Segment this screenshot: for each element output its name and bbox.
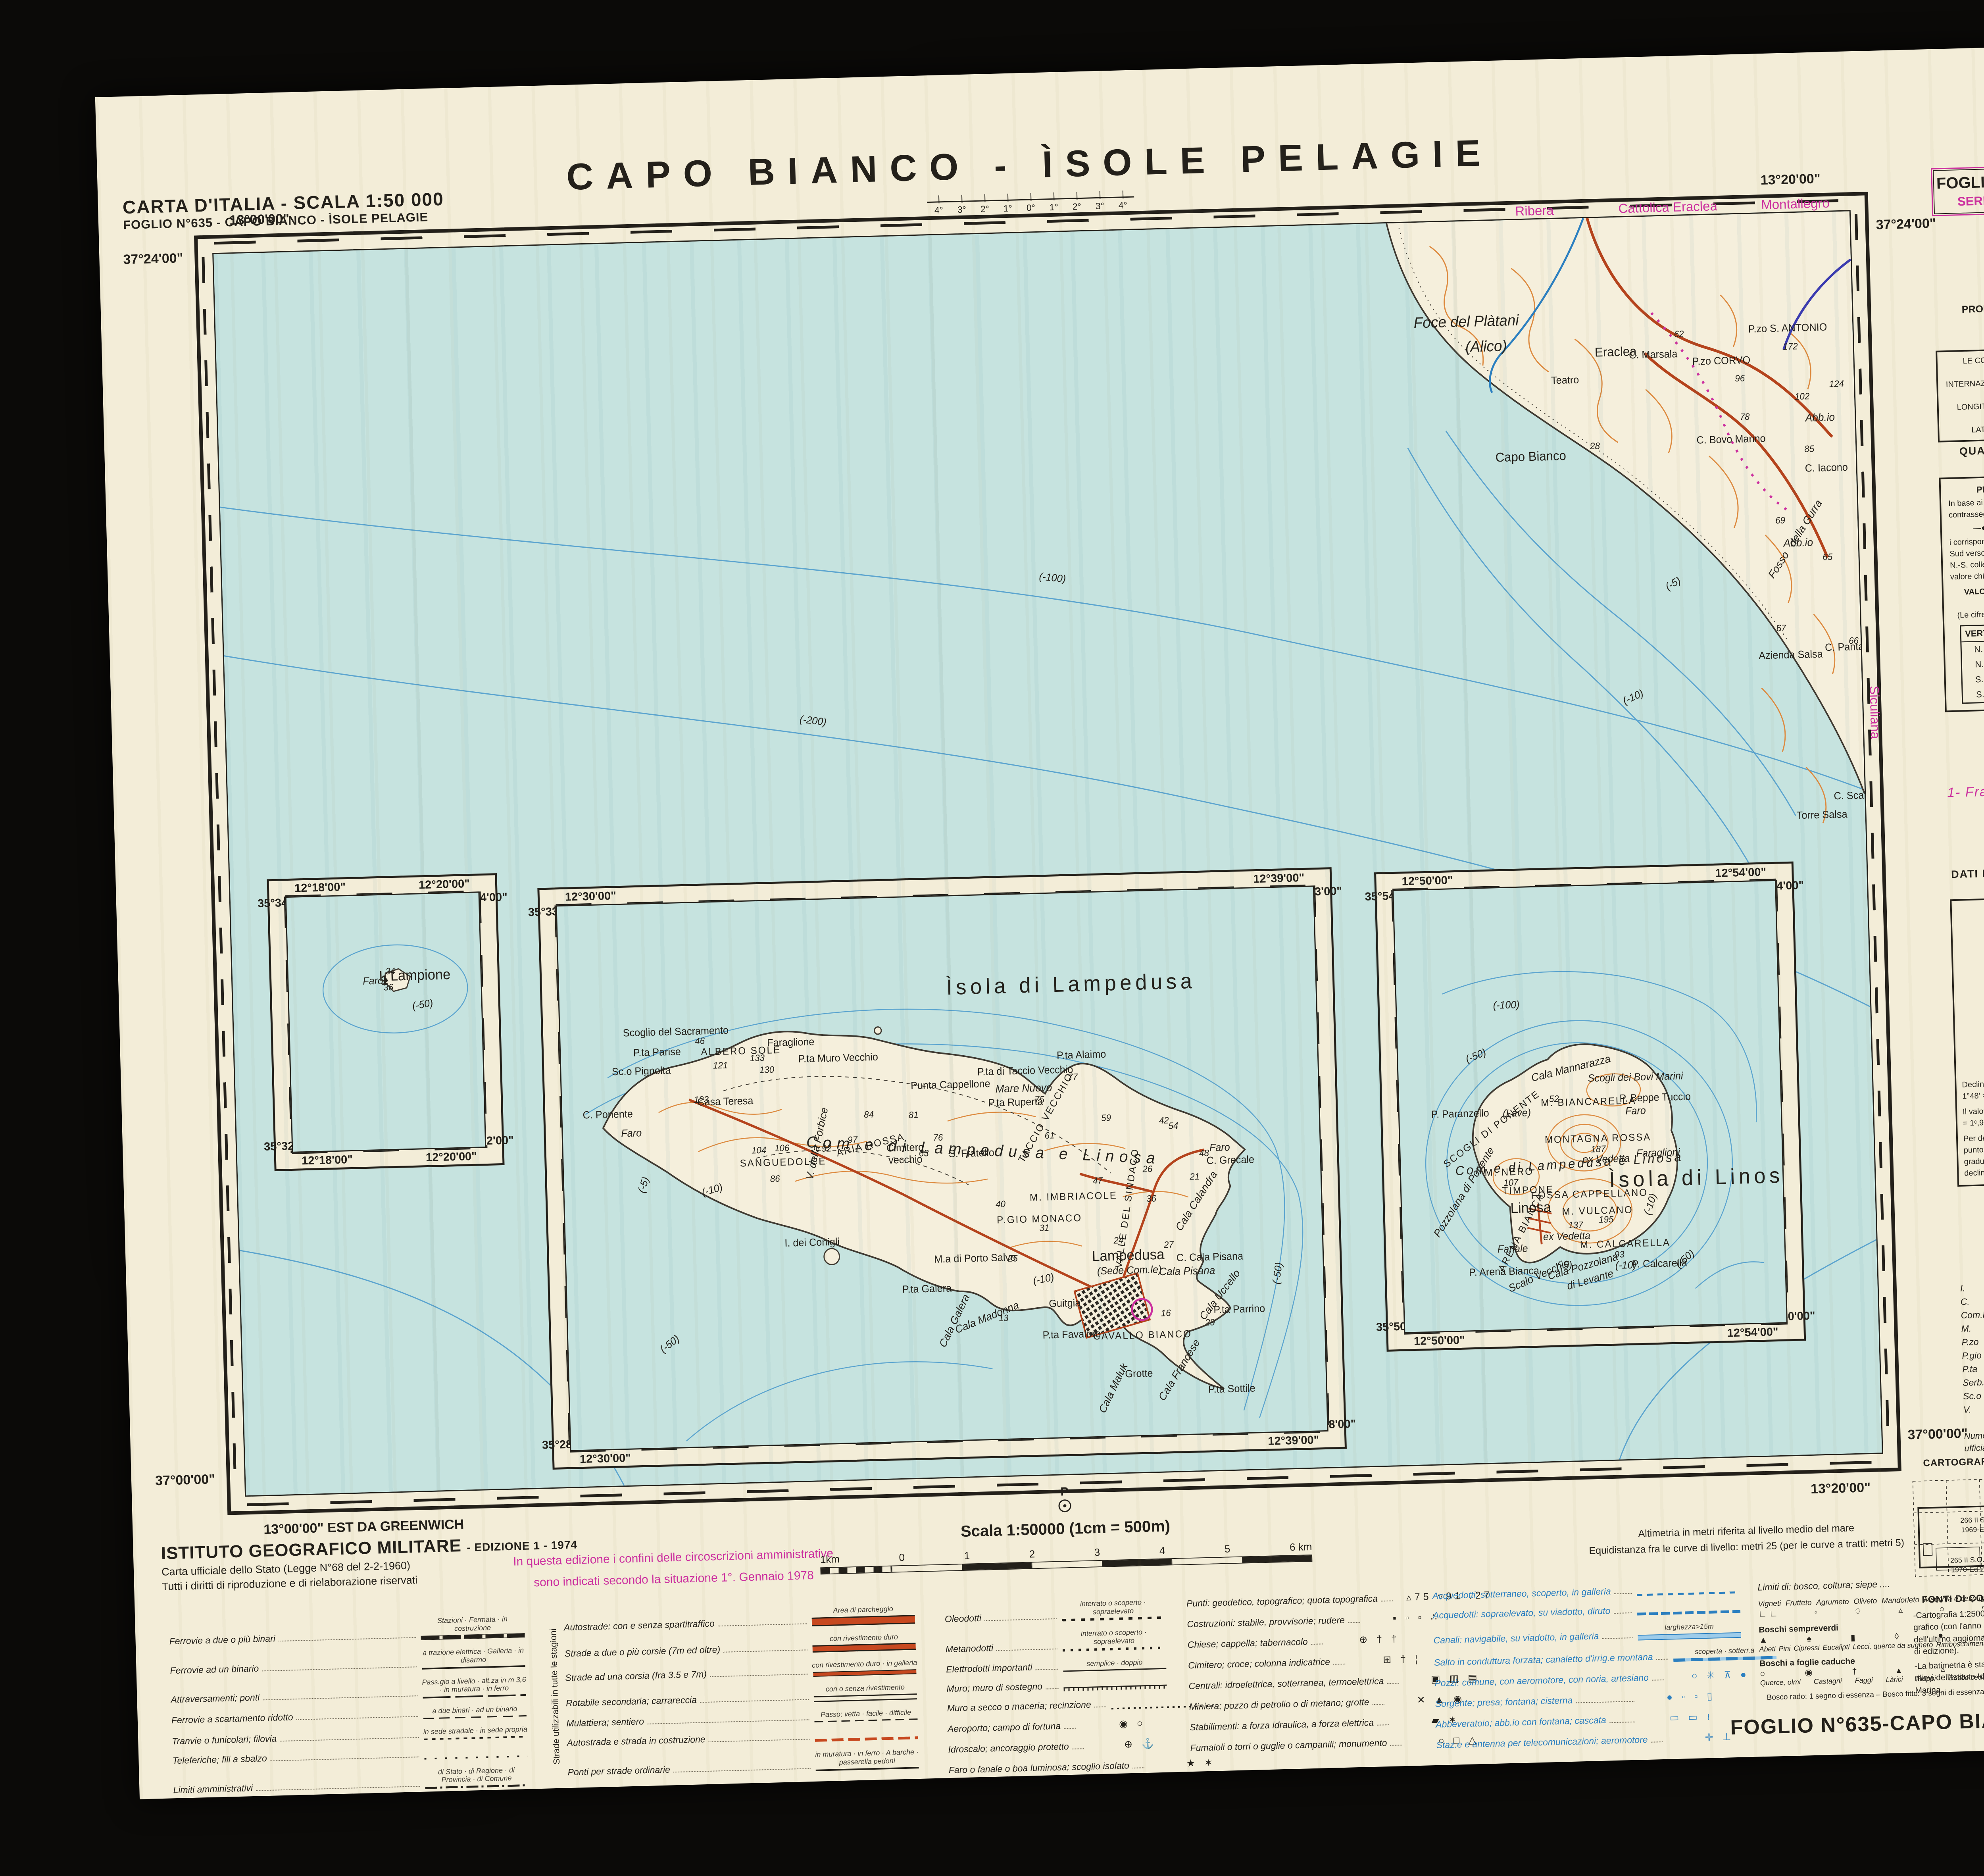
veg-limits: Limiti di: bosco, coltura; siepe .... bbox=[1757, 1576, 1984, 1593]
legend-part bbox=[700, 1699, 809, 1703]
edge-town-montallegro: Montallegro bbox=[1761, 196, 1830, 213]
map-label: 265 II S.O. bbox=[1950, 1556, 1984, 1564]
scale-segment bbox=[1102, 1559, 1172, 1566]
label: Làrici bbox=[1886, 1675, 1903, 1684]
map-label: (-5) bbox=[636, 1176, 651, 1195]
legend-symbol-sample bbox=[814, 1693, 917, 1702]
map-label: 28 bbox=[1590, 441, 1600, 451]
vertex-cell: S. O. bbox=[1962, 671, 1984, 687]
legend-part bbox=[1377, 1724, 1389, 1726]
map-label: 31 bbox=[1039, 1222, 1049, 1233]
legend-part: Miniera; pozzo di petrolio o di metano; … bbox=[1189, 1697, 1369, 1712]
legend-col-railways: Ferrovie a due o più binariStazioni · Fe… bbox=[169, 1614, 531, 1804]
inset-coord: 12°20'00" bbox=[426, 1150, 477, 1164]
orientation-title: DATI DI ORIENTAMENTO PER IL CENTRO DELLA… bbox=[1949, 862, 1984, 893]
map-label: Azienda Salsa bbox=[1759, 648, 1823, 662]
map-label: (-5) bbox=[1557, 1259, 1573, 1271]
legend-sublabel: in muratura · in ferro · A barche · pass… bbox=[813, 1748, 921, 1767]
legend-part bbox=[256, 1786, 420, 1791]
map-label: C. Ponente bbox=[583, 1108, 633, 1121]
declination-diagram: 2°05'2°00'1°55'1°50'1°45'1°45' bbox=[1961, 900, 1984, 1026]
legend-part bbox=[718, 1623, 807, 1626]
label: Frutteto bbox=[1786, 1599, 1812, 1608]
legend-part bbox=[984, 1618, 1057, 1621]
label: Faggi bbox=[1855, 1676, 1873, 1685]
map-label: 1 bbox=[381, 973, 388, 988]
vertex-th: VERTICE bbox=[1961, 625, 1984, 641]
map-label: Scoglio del Sacramento bbox=[623, 1025, 729, 1039]
vertex-cell: N. E. bbox=[1962, 656, 1984, 672]
map-label: P.ta Parise bbox=[633, 1046, 681, 1059]
legend-part bbox=[263, 1695, 417, 1700]
legend-symbol-sample bbox=[424, 1736, 527, 1740]
legend-part bbox=[723, 1650, 807, 1653]
legend-sublabel: Area di parcheggio bbox=[809, 1604, 917, 1615]
legend-row: Teleferiche; fili a sbalzo bbox=[172, 1746, 529, 1766]
legend-part: Teleferiche; fili a sbalzo bbox=[172, 1753, 267, 1766]
legend-part: Sorgente; presa; fontana; cisterna bbox=[1435, 1695, 1573, 1709]
legend-symbol-sample bbox=[425, 1784, 528, 1789]
legend-part bbox=[1064, 1728, 1076, 1729]
label: Vigneti bbox=[1758, 1599, 1781, 1609]
legend-sublabel: di Stato · di Regione · di Provincia · d… bbox=[423, 1765, 530, 1784]
map-label: Faro bbox=[1209, 1142, 1230, 1154]
map-label: Scogli dei Bovi Marini bbox=[1588, 1070, 1684, 1084]
legend-row: Aeroporto; campo di fortuna◉ ○ bbox=[948, 1717, 1170, 1735]
scale-segment bbox=[1242, 1555, 1312, 1563]
legend-col-lines: Oleodottiinterrato o scoperto · sopraele… bbox=[944, 1598, 1171, 1785]
map-label: Lampedusa bbox=[1092, 1246, 1165, 1264]
legend-symbol-sample bbox=[813, 1643, 916, 1653]
label: ▲ bbox=[1759, 1635, 1768, 1645]
map-label: Abb.io bbox=[1782, 536, 1813, 549]
map-label: Punta Cappellone bbox=[911, 1078, 990, 1092]
legend-sublabel: interrato o scoperto · sopraelevato bbox=[1060, 1628, 1168, 1647]
label: 1 bbox=[964, 1550, 970, 1562]
map-label: Grotte bbox=[1125, 1368, 1153, 1380]
abbreviations-title: ABBREVIAZIONI bbox=[1959, 1259, 1984, 1278]
legend-row: Abbeveratoio; abb.io con fontana; cascat… bbox=[1436, 1710, 1746, 1730]
map-label: 52 bbox=[1549, 1093, 1559, 1104]
label: ▮ bbox=[1850, 1632, 1855, 1643]
map-label: 172 bbox=[1783, 341, 1798, 352]
legend-row: Faro o fanale o boa luminosa; scoglio is… bbox=[948, 1758, 1171, 1776]
map-label: 77 bbox=[1068, 1072, 1079, 1082]
legend-symbol-sample bbox=[423, 1694, 526, 1699]
label: 3° bbox=[1088, 200, 1111, 212]
label: ◉ bbox=[1805, 1667, 1813, 1678]
map-label: 63 bbox=[919, 1148, 929, 1158]
legend-part bbox=[1046, 1688, 1058, 1689]
map-label: Abb.io bbox=[1804, 411, 1835, 424]
label: 3° bbox=[950, 204, 974, 215]
legend-part bbox=[1061, 1682, 1169, 1691]
map-label: 76 bbox=[933, 1132, 943, 1143]
legend-part: Mulattiera; sentiero bbox=[566, 1716, 644, 1729]
label: Agrumeto bbox=[1816, 1598, 1849, 1607]
legend-symbol-sample bbox=[421, 1633, 525, 1640]
scale-segment bbox=[1171, 1557, 1242, 1565]
legend-part: Strade ad una corsia (fra 3.5 e 7m) bbox=[565, 1669, 707, 1683]
inset-coord: 12°39'00" bbox=[1253, 872, 1305, 886]
legend-row: Fumaioli o torri o guglie o campanili; m… bbox=[1190, 1736, 1413, 1754]
map-label: 36 bbox=[1146, 1193, 1157, 1204]
map-label: 96 bbox=[1735, 373, 1745, 383]
vertex-table: VERTICE FUSO OVEST FUSO EST N. O.2342905… bbox=[1960, 620, 1984, 704]
legend-part bbox=[1381, 1601, 1393, 1602]
legend-part: ✛ ⊥ bbox=[1666, 1730, 1773, 1745]
legend-sublabel: Stazioni · Fermata · in costruzione bbox=[419, 1614, 526, 1634]
map-area: Foce del Plàtani(Alico)Capo BiancoEracle… bbox=[212, 210, 1883, 1497]
legend-part: a due binari · ad un binario bbox=[421, 1705, 529, 1719]
legend-row: Ferrovie a scartamento ridottoa due bina… bbox=[171, 1705, 528, 1726]
legend-part bbox=[1094, 1707, 1106, 1708]
label: ◦ bbox=[1814, 1607, 1817, 1618]
map-label: P.ta Sottile bbox=[1208, 1383, 1255, 1395]
legend-part: interrato o scoperto · sopraelevato bbox=[1059, 1598, 1167, 1622]
label: Castagni bbox=[1813, 1677, 1842, 1686]
legend-row: Elettrodotti importantisemplice · doppio bbox=[946, 1657, 1169, 1675]
legend-part: ⊕ ⚓ bbox=[1087, 1737, 1194, 1751]
legend-col-vegetation: Limiti di: bosco, coltura; siepe .... Vi… bbox=[1757, 1576, 1984, 1702]
map-label: ex Vedetta bbox=[1582, 1153, 1630, 1166]
legend-part: Stabilimenti: a forza idraulica, a forza… bbox=[1190, 1717, 1374, 1733]
legend-row: Limiti amministratividi Stato · di Regio… bbox=[173, 1765, 530, 1795]
legend-part: Aeroporto; campo di fortuna bbox=[948, 1721, 1061, 1734]
map-label: P. Paranzello bbox=[1431, 1108, 1489, 1120]
map-label: vecchio bbox=[888, 1154, 923, 1166]
map-label: 81 bbox=[908, 1109, 918, 1120]
legend-row: Centrali: idroelettrica, sotterranea, te… bbox=[1188, 1674, 1411, 1692]
map-label: 137 bbox=[1568, 1220, 1584, 1231]
legend-part bbox=[1387, 1683, 1399, 1684]
legend-part bbox=[1614, 1612, 1632, 1614]
map-label: 59 bbox=[1101, 1112, 1111, 1123]
legend-part: Attraversamenti; ponti bbox=[171, 1692, 260, 1705]
inset-coord: 12°30'00" bbox=[565, 889, 617, 904]
grid-head: PER TRACCIARE LA QUADRETTATURA: bbox=[1948, 479, 1984, 496]
label: △ bbox=[1982, 1629, 1984, 1639]
legend-row: Acquedotti: sopraelevato, su viadotto, d… bbox=[1433, 1602, 1742, 1621]
ellipsoid-box: LE COORDINATE GEOGRAFICHE SONO RIFERITE … bbox=[1936, 344, 1984, 443]
scale-title: Scala 1:50000 (1cm = 500m) bbox=[960, 1517, 1170, 1541]
legend-part: Chiese; cappella; tabernacolo bbox=[1187, 1636, 1308, 1650]
label: ◊ bbox=[1894, 1631, 1899, 1641]
legend-col-water: Acquedotti: sotterraneo, scoperto, in ga… bbox=[1432, 1583, 1746, 1760]
label: ○ bbox=[1939, 1604, 1945, 1614]
vertex-rows: N. O.23429054140994N. E.23724144140421S.… bbox=[1961, 637, 1984, 703]
legend-symbol-icon: ◉ ○ bbox=[1079, 1716, 1186, 1731]
legend-sublabel: Passo; vetta · facile · difficile bbox=[812, 1708, 919, 1719]
grid-panel-title: QUADRETTATURA CHILOMETRICA GAUSS - BOAGA bbox=[1938, 440, 1984, 471]
legend-symbol-sample bbox=[1063, 1646, 1166, 1651]
legend-row: Canali: navigabile, su viadotto, in gall… bbox=[1433, 1622, 1743, 1646]
legend-part: Staz.e e antenna per telecomunicazioni; … bbox=[1436, 1734, 1648, 1751]
legend-part: Autostrada e strada in costruzione bbox=[567, 1734, 706, 1749]
scale-segment bbox=[962, 1562, 1032, 1570]
map-label: (-50) bbox=[1271, 1262, 1284, 1285]
legend-sublabel: semplice · doppio bbox=[1061, 1657, 1168, 1668]
legend-part: Tranvie o funicolari; filovia bbox=[172, 1733, 277, 1747]
label: 0 bbox=[899, 1551, 905, 1564]
grid-p3: VALORI IN METRI DELLE COORDINATE DEI VER… bbox=[1951, 581, 1984, 610]
label: ▵ bbox=[1898, 1605, 1903, 1615]
map-label: S. Fratello bbox=[949, 1147, 995, 1160]
map-sheet: CARTA D'ITALIA - SCALA 1:50 000 FOGLIO N… bbox=[95, 42, 1984, 1799]
legend-row: Rotabile secondaria; carrarecciacon o se… bbox=[565, 1683, 919, 1709]
grid-p2: i corrispondenti valori chilometrici int… bbox=[1949, 531, 1984, 583]
map-label: (Lave) bbox=[1503, 1107, 1531, 1119]
map-label: P.ta Favaloro bbox=[1042, 1328, 1101, 1341]
legend-part: Punti: geodetico, topografico; quota top… bbox=[1186, 1593, 1378, 1609]
legend-row: Strade ad una corsia (fra 3.5 e 7m)con r… bbox=[565, 1659, 919, 1683]
abbrev-part: P.ta bbox=[1962, 1363, 1984, 1375]
legend-part bbox=[422, 1753, 529, 1759]
faraglione-islet bbox=[874, 1027, 881, 1034]
legend-part: Area di parcheggio bbox=[809, 1604, 917, 1626]
map-label: P.zo CORVO bbox=[1692, 354, 1750, 367]
legend-part bbox=[1373, 1704, 1384, 1705]
map-label: P.ta Alaimo bbox=[1057, 1049, 1106, 1061]
edge-town-siculiana: Siculiana bbox=[1867, 686, 1883, 739]
legend-part: Muro a secco o maceria; recinzione bbox=[947, 1699, 1091, 1714]
legend-part: con rivestimento duro bbox=[810, 1632, 918, 1653]
legend-sublabel: Pass.gio a livello · alt.za in m 3,6 · i… bbox=[420, 1676, 528, 1695]
legend-symbol-icon: ⊕ ⚓ bbox=[1087, 1737, 1194, 1751]
map-label: 25 bbox=[1007, 1253, 1018, 1264]
vertex-cell: N. O. bbox=[1961, 641, 1984, 657]
legend-part bbox=[1311, 1643, 1323, 1645]
legend-part: Muro; muro di sostegno bbox=[946, 1681, 1042, 1694]
legend-part: Ferrovie ad un binario bbox=[170, 1663, 259, 1676]
legend-part: con rivestimento duro · in galleria bbox=[811, 1659, 919, 1677]
legend-part: Fumaioli o torri o guglie o campanili; m… bbox=[1190, 1737, 1387, 1753]
legend-part: Acquedotti: sopraelevato, su viadotto, d… bbox=[1433, 1605, 1611, 1621]
map-label: Cala Pisana bbox=[1159, 1264, 1215, 1278]
map-label: Cala Maluk bbox=[1096, 1360, 1130, 1415]
legend-part bbox=[296, 1716, 418, 1720]
inset-coord: 12°54'00" bbox=[1715, 866, 1767, 880]
fraction-note: 1- Fraz.e del Com.e di Lampedusa e Linos… bbox=[1947, 779, 1984, 800]
legend-part: Rotabile secondaria; carrareccia bbox=[566, 1694, 697, 1709]
label: Eucalipti bbox=[1823, 1643, 1850, 1652]
map-label: (Sede Com.le) bbox=[1097, 1264, 1162, 1277]
declination-p1: Declinazione magnetica nel centro carta … bbox=[1962, 1074, 1984, 1103]
legend-sublabel: a trazione elettrica · Galleria · in dis… bbox=[419, 1646, 527, 1665]
legend-part: larghezza>15m bbox=[1636, 1622, 1743, 1641]
map-label: (-50) bbox=[658, 1333, 681, 1355]
projection-note: PROIEZIONE CONFORME UNIVERSALE TRASVERSA… bbox=[1934, 297, 1984, 346]
legend-row: Miniera; pozzo di petrolio o di metano; … bbox=[1189, 1695, 1411, 1712]
map-label: P.zo S. ANTONIO bbox=[1748, 321, 1827, 335]
map-label: M. CALCARELLA bbox=[1580, 1237, 1671, 1251]
legend-part: Idroscalo; ancoraggio protetto bbox=[948, 1741, 1069, 1755]
label: Pini bbox=[1778, 1644, 1791, 1653]
map-label: 47 bbox=[1093, 1175, 1104, 1186]
legend-part bbox=[1390, 1745, 1402, 1746]
legend-symbol-sample bbox=[425, 1755, 528, 1759]
legend-part bbox=[1635, 1589, 1742, 1596]
legend-sublabel: con rivestimento duro · in galleria bbox=[811, 1659, 918, 1670]
label: 1° bbox=[1042, 202, 1066, 213]
abbrev-part: V. bbox=[1963, 1403, 1984, 1415]
map-label: 21 bbox=[1189, 1171, 1200, 1182]
right-margin-column: FOGLIO N°635-CAPO BIANCO-ÌSOLE PELAGIE S… bbox=[1931, 162, 1984, 216]
scale-segment bbox=[892, 1564, 962, 1572]
label: Macchia e cespugli bbox=[1924, 1594, 1984, 1604]
map-label: 48 bbox=[1199, 1147, 1209, 1158]
legend-part bbox=[1652, 1680, 1664, 1681]
inset-lampione: 12°18'00" 35°34'00" 12°20'00" 35°34'00" … bbox=[267, 873, 504, 1171]
map-label: C. Grecale bbox=[1206, 1154, 1254, 1167]
abbreviations-list: I.isolaC.Casa, capoCom.lecomunaleM.monte… bbox=[1960, 1277, 1984, 1415]
map-label: 84 bbox=[864, 1109, 874, 1120]
legend-row: Stabilimenti: a forza idraulica, a forza… bbox=[1190, 1715, 1412, 1733]
map-label: P.ta Galera bbox=[902, 1283, 952, 1295]
map-label: 27 bbox=[1163, 1239, 1175, 1250]
coord-top-left-lat: 37°24'00" bbox=[123, 250, 183, 267]
legend-row: Ferrovie a due o più binariStazioni · Fe… bbox=[169, 1614, 527, 1647]
label: ∟ ∟ bbox=[1758, 1608, 1778, 1619]
map-label: 54 bbox=[1168, 1120, 1178, 1131]
map-label: Teatro bbox=[1551, 374, 1579, 386]
map-label: (-10) bbox=[1615, 1259, 1636, 1271]
inset-lampedusa: 12°30'00" 35°33'00" 12°39'00" 35°33'00" … bbox=[537, 867, 1347, 1470]
map-label: 121 bbox=[713, 1060, 728, 1070]
inset-map-linosa: Ìsola di LinosaCom.e di Lampedusa e Lino… bbox=[1392, 880, 1788, 1333]
legend-part: Pozzi: comune, con aeromotore, con noria… bbox=[1434, 1672, 1649, 1689]
map-label: Faraglione bbox=[767, 1036, 815, 1049]
legend-part: ○ ✳ ⊼ ● bbox=[1667, 1668, 1774, 1683]
map-label: 130 bbox=[759, 1064, 775, 1075]
legend-part: Pass.gio a livello · alt.za in m 3,6 · i… bbox=[420, 1676, 528, 1699]
legend-symbol-sample bbox=[813, 1669, 916, 1677]
label: 4° bbox=[1111, 200, 1134, 212]
legend-row: Cimitero; croce; colonna indicatrice⊞ † … bbox=[1188, 1653, 1411, 1671]
legend-part: Salto in conduttura forzata; canaletto d… bbox=[1434, 1652, 1653, 1668]
label: 5 bbox=[1225, 1543, 1230, 1555]
legend-part: interrato o scoperto · sopraelevato bbox=[1060, 1628, 1168, 1651]
legend-part bbox=[262, 1666, 417, 1671]
abbreviation-row: I.isola bbox=[1960, 1277, 1984, 1294]
abbrev-part: P.zo bbox=[1961, 1336, 1984, 1348]
map-label: I. dei Conigli bbox=[784, 1236, 840, 1249]
legend-part: ▭ ▭ ≀ bbox=[1638, 1710, 1746, 1725]
legend-part bbox=[1614, 1593, 1632, 1594]
map-label: 92 bbox=[821, 1143, 832, 1154]
map-label: 16 bbox=[1161, 1307, 1171, 1318]
map-label: Faro bbox=[621, 1128, 642, 1139]
legend-symbol-sample bbox=[815, 1719, 918, 1723]
legend-symbol-sample bbox=[1063, 1668, 1166, 1672]
legend-row: Muro a secco o maceria; recinzione bbox=[947, 1697, 1169, 1714]
legend-symbol-icon: ○ ✳ ⊼ ● bbox=[1667, 1668, 1774, 1683]
legend-part bbox=[1609, 1722, 1635, 1723]
legend-symbol-icon: ✛ ⊥ bbox=[1666, 1730, 1773, 1745]
legend-row: Costruzioni: stabile, provvisorie; ruder… bbox=[1187, 1612, 1409, 1630]
legend-symbol-sample bbox=[1637, 1591, 1740, 1596]
declination-point-p: P bbox=[1058, 1485, 1071, 1512]
map-label: 187 bbox=[1591, 1143, 1606, 1154]
legend-sublabel: a due binari · ad un binario bbox=[421, 1705, 528, 1716]
map-label: Faraglioni bbox=[1636, 1147, 1680, 1159]
label: ▵ bbox=[1940, 1664, 1945, 1674]
label: 3 bbox=[1094, 1546, 1100, 1559]
edge-town-ribera: Ribera bbox=[1515, 203, 1554, 219]
legend-part: Abbeveratoio; abb.io con fontana; cascat… bbox=[1436, 1715, 1606, 1730]
legend-sublabel: interrato o scoperto · sopraelevato bbox=[1059, 1598, 1167, 1617]
map-label: Capo Bianco bbox=[1495, 448, 1566, 464]
label: ● bbox=[1938, 1630, 1944, 1640]
map-label: C. Bovo Marino bbox=[1696, 433, 1766, 446]
label: Querce, olmi bbox=[1760, 1678, 1801, 1687]
map-label: Foce del Plàtani bbox=[1413, 312, 1520, 331]
abbrev-part: C. bbox=[1960, 1295, 1984, 1307]
lampione-labels: I. LampioneFaro34361(-50) bbox=[363, 964, 452, 1013]
map-label: M.a di Porto Salvo bbox=[934, 1252, 1016, 1265]
label: 6 km bbox=[1290, 1541, 1312, 1553]
map-label: 86 bbox=[770, 1173, 780, 1184]
legend-row: Autostrade: con e senza spartitrafficoAr… bbox=[563, 1604, 917, 1633]
label: † bbox=[1852, 1666, 1857, 1676]
cart25-title: CARTOGRAFIA 1:25000 bbox=[1909, 1455, 1984, 1469]
label: ○ bbox=[1760, 1668, 1765, 1679]
legend-part bbox=[1036, 1669, 1058, 1670]
legend-part bbox=[1333, 1664, 1345, 1665]
legend-part: di Stato · di Regione · di Provincia · d… bbox=[423, 1765, 530, 1789]
map-label: 106 bbox=[775, 1143, 790, 1154]
map-label: C. Iacono bbox=[1805, 462, 1848, 474]
inset-coord: 12°54'00" bbox=[1727, 1326, 1778, 1340]
label: Rimboschimento bbox=[1936, 1639, 1984, 1649]
legend-row: Sorgente; presa; fontana; cisterna● ◦ ▫ … bbox=[1435, 1689, 1745, 1709]
label: 4 bbox=[1159, 1545, 1165, 1557]
map-label: 104 bbox=[752, 1145, 767, 1155]
inset-linosa: 12°50'00" 35°54'00" 12°54'00" 35°54'00" … bbox=[1374, 862, 1806, 1352]
legend-part: ◉ ○ bbox=[1079, 1716, 1186, 1731]
vertex-cell: S. E. bbox=[1963, 686, 1984, 702]
map-label: (-50) bbox=[411, 997, 434, 1012]
inset-map-lampione: I. LampioneFaro34361(-50) bbox=[285, 891, 486, 1153]
legend-row: Ponti per strade ordinariein muratura · … bbox=[567, 1748, 921, 1778]
map-label: 102 bbox=[1795, 391, 1810, 402]
legend-row: Metanodottiinterrato o scoperto · soprae… bbox=[945, 1628, 1168, 1655]
coord-top-left-lon: 13°00'00" bbox=[229, 211, 289, 228]
orientation-panel: DATI DI ORIENTAMENTO PER IL CENTRO DELLA… bbox=[1949, 862, 1984, 1187]
label: 1km bbox=[820, 1553, 840, 1566]
map-label: (-100) bbox=[1493, 999, 1520, 1011]
map-label: C. Marsala bbox=[1629, 348, 1678, 361]
isola-dei-conigli bbox=[824, 1249, 840, 1265]
legend-row: Pozzi: comune, con aeromotore, con noria… bbox=[1434, 1669, 1744, 1689]
label: Pioppi bbox=[1916, 1674, 1936, 1683]
legend-part bbox=[673, 1768, 811, 1772]
legend-symbol-icon: ● ◦ ▫ ▯ bbox=[1637, 1689, 1745, 1704]
legend-row: Tranvie o funicolari; filoviain sede str… bbox=[172, 1725, 529, 1747]
abbrev-part: I. bbox=[1960, 1282, 1984, 1294]
legend-symbol-sample bbox=[815, 1737, 918, 1742]
inset-coord: 12°50'00" bbox=[1401, 874, 1453, 888]
legend-part bbox=[1132, 1768, 1144, 1769]
legend-part: a trazione elettrica · Galleria · in dis… bbox=[419, 1646, 527, 1669]
label: Mandorleto bbox=[1882, 1596, 1920, 1605]
legend-row: Idroscalo; ancoraggio protetto⊕ ⚓ bbox=[948, 1737, 1171, 1755]
label: ∿ bbox=[1981, 1603, 1984, 1613]
p-circle-icon bbox=[1058, 1499, 1071, 1512]
legend-part: Centrali: idroelettrica, sotterranea, te… bbox=[1188, 1676, 1384, 1691]
legend-row: Chiese; cappella; tabernacolo⊕ † † bbox=[1187, 1633, 1410, 1651]
map-label: 195 bbox=[1599, 1214, 1614, 1225]
